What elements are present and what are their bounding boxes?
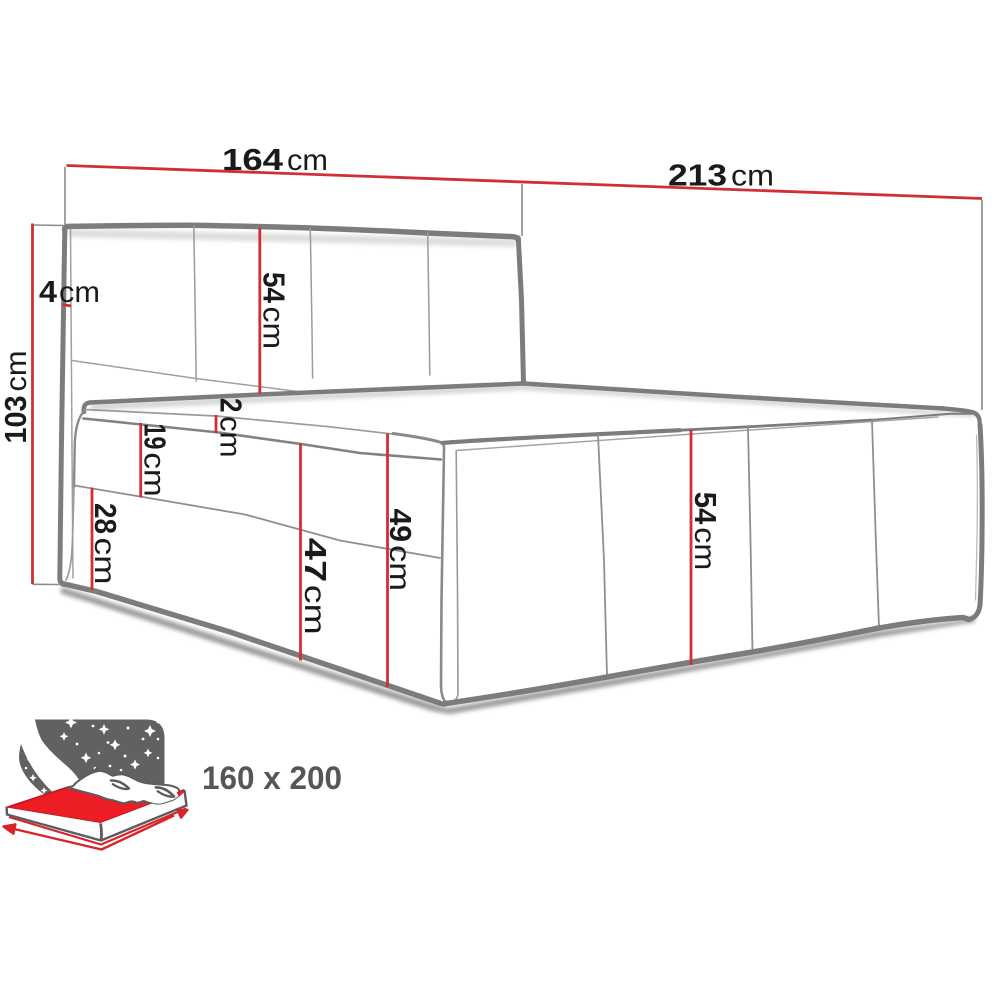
svg-text:103: 103 [0,396,33,444]
svg-text:28: 28 [88,503,123,534]
svg-text:cm: cm [383,545,416,591]
svg-text:4: 4 [39,274,58,309]
svg-text:cm: cm [298,585,331,635]
svg-text:2: 2 [214,398,249,413]
svg-text:19: 19 [138,423,173,449]
svg-text:cm: cm [731,160,774,193]
svg-text:164: 164 [222,142,284,177]
svg-text:213: 213 [668,158,727,193]
svg-text:54: 54 [688,492,723,525]
svg-text:cm: cm [287,144,328,177]
svg-text:cm: cm [59,276,100,309]
svg-text:49: 49 [383,509,418,543]
svg-text:cm: cm [257,307,290,350]
svg-text:47: 47 [298,538,333,583]
svg-text:54: 54 [257,272,292,304]
svg-text:160 x 200: 160 x 200 [202,760,342,796]
svg-text:cm: cm [688,527,721,570]
svg-text:cm: cm [0,351,33,392]
svg-text:cm: cm [88,538,121,585]
svg-text:cm: cm [138,452,171,496]
svg-text:cm: cm [214,416,247,458]
